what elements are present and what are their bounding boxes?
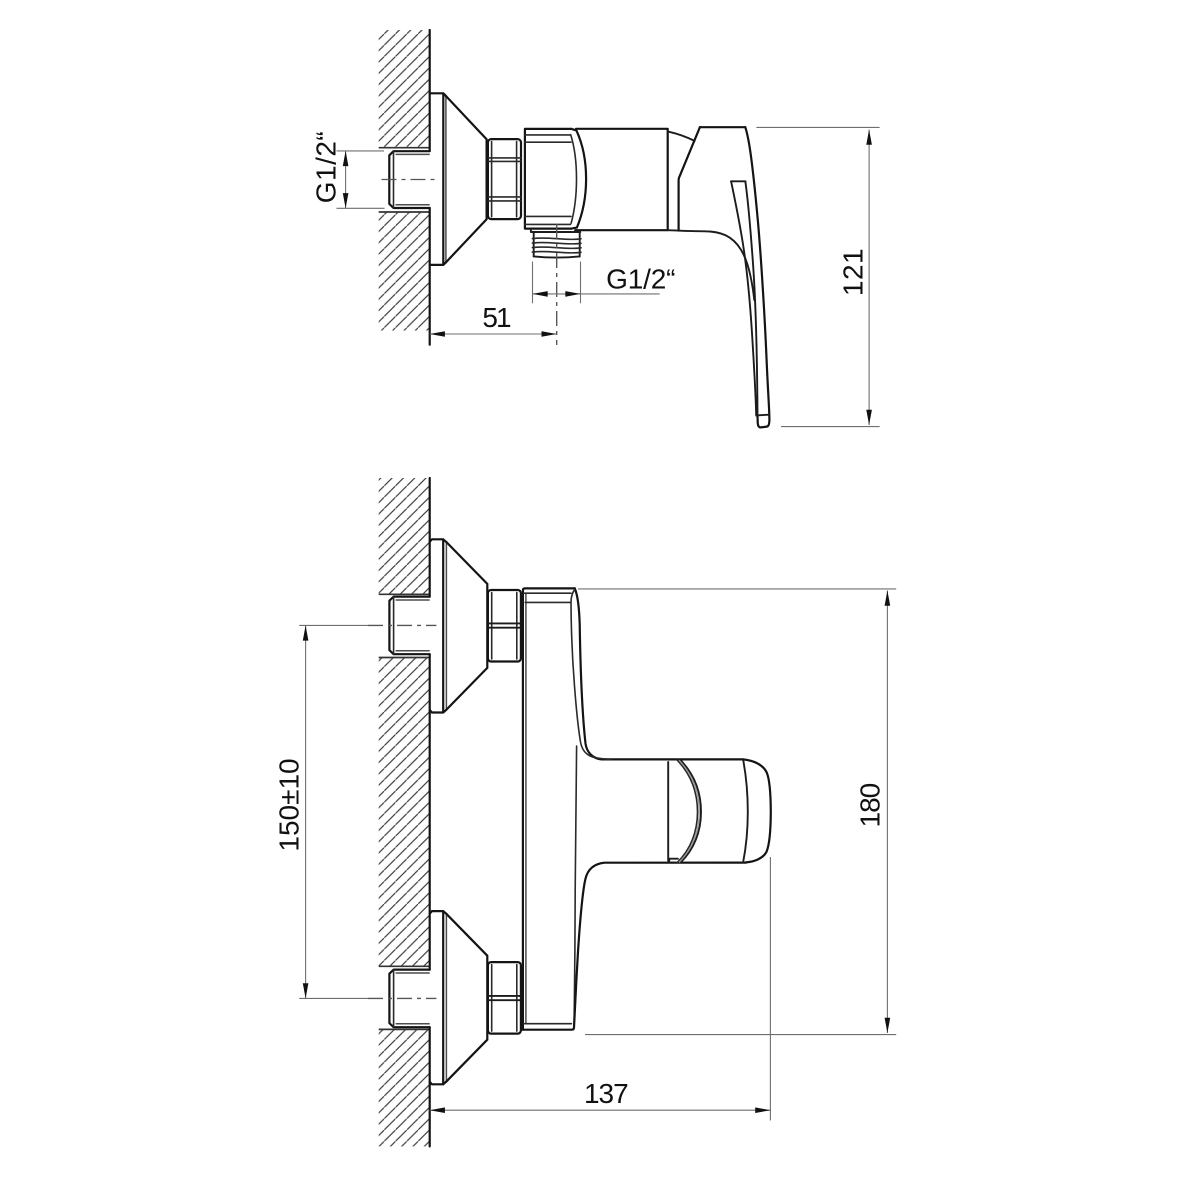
svg-text:121: 121	[838, 248, 869, 296]
svg-text:150±10: 150±10	[273, 758, 304, 851]
svg-text:137: 137	[584, 1078, 628, 1109]
svg-text:51: 51	[482, 302, 511, 333]
svg-text:G1/2“: G1/2“	[311, 131, 342, 204]
svg-text:180: 180	[854, 783, 885, 827]
svg-text:G1/2“: G1/2“	[606, 264, 675, 295]
